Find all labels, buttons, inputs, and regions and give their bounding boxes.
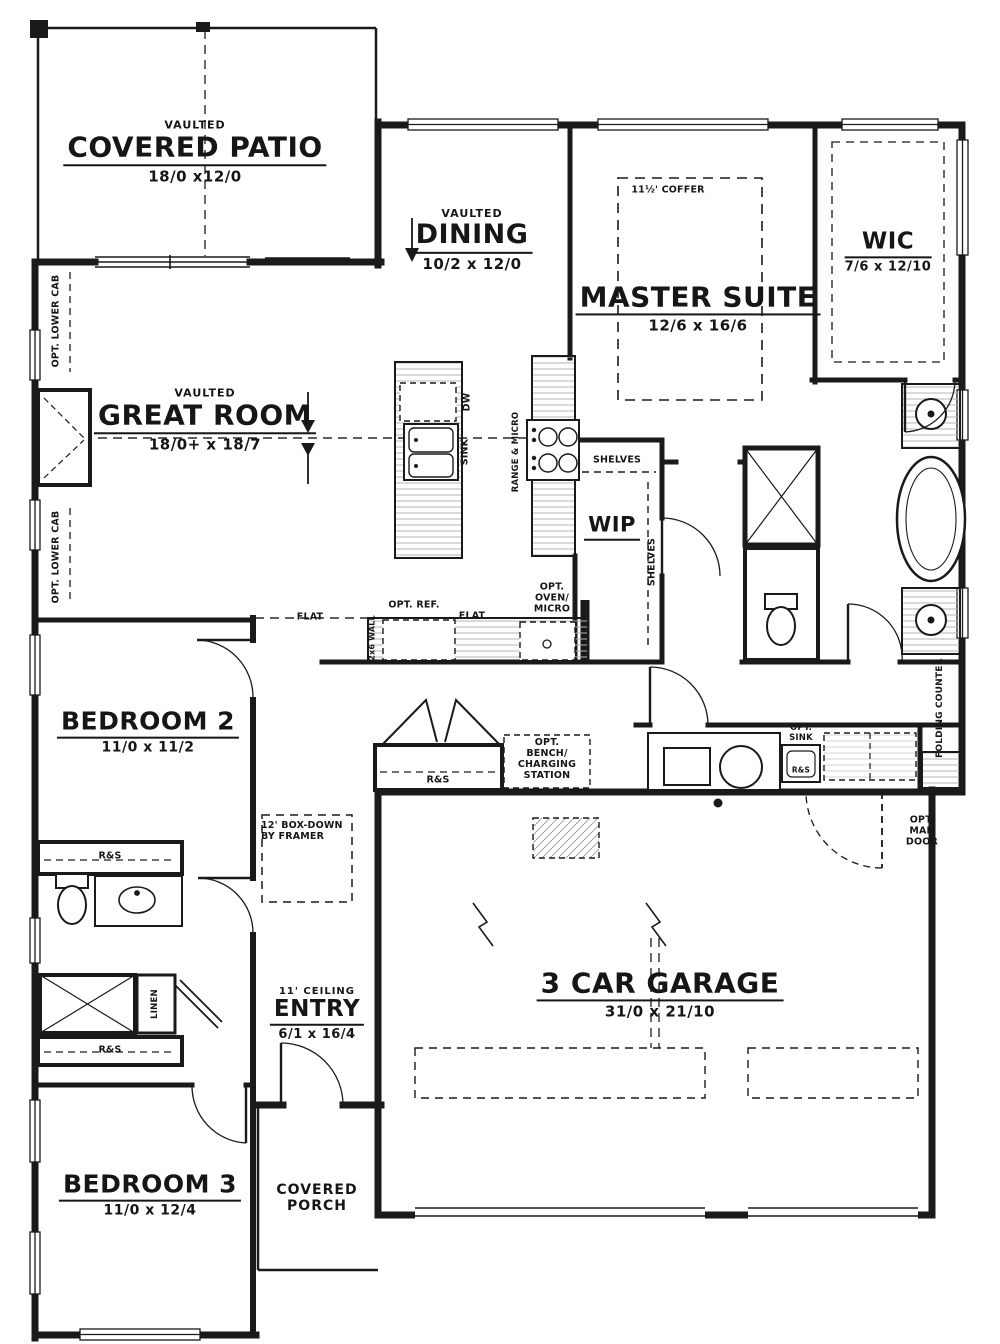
sink-label: SINK — [461, 439, 472, 466]
room-name: 3 CAR GARAGE — [537, 967, 784, 1001]
room-label-bedroom-2: BEDROOM 2 11/0 x 11/2 — [57, 708, 239, 757]
room-dims: 7/6 x 12/10 — [845, 258, 932, 275]
linen-label: LINEN — [151, 989, 161, 1019]
room-name: MASTER SUITE — [576, 281, 821, 315]
toilet — [767, 607, 795, 645]
room-name: ENTRY — [270, 997, 364, 1026]
room-name: WIC — [845, 229, 932, 258]
range-and-micro — [527, 356, 579, 556]
rod-shelf-label: R&S — [98, 1046, 121, 1057]
master-toilet-room — [745, 548, 818, 660]
box-down-label: 12' BOX-DOWN BY FRAMER — [261, 821, 355, 843]
attic-access — [533, 818, 599, 858]
opt-bench-label: OPT. BENCH/ CHARGING STATION — [514, 738, 580, 782]
floor-plan-drawing — [0, 0, 1000, 1344]
rod-shelf-label: R&S — [426, 776, 449, 787]
range-micro-label: RANGE & MICRO — [512, 412, 522, 493]
room-label-wic: WIC 7/6 x 12/10 — [845, 229, 932, 274]
opt-lower-cab-label: OPT. LOWER CAB — [52, 275, 63, 368]
coffer-note: 11½' COFFER — [631, 186, 704, 197]
wall-2x6-label: 2x6 WALL — [367, 615, 376, 661]
garage-bay — [415, 1048, 705, 1098]
rod-shelf-label: R&S — [792, 767, 810, 776]
opt-lower-cab-label: OPT. LOWER CAB — [52, 511, 63, 604]
ceiling-break — [473, 903, 666, 946]
room-name: BEDROOM 2 — [57, 708, 239, 739]
opt-refrigerator — [383, 620, 455, 660]
room-label-covered-patio: VAULTED COVERED PATIO 18/0 x12/0 — [63, 119, 326, 184]
room-name: DINING — [412, 220, 533, 253]
opt-sink-label: OPT. SINK — [781, 724, 821, 744]
opt-ref-label: OPT. REF. — [388, 601, 439, 612]
room-name: WIP — [584, 514, 640, 541]
kitchen-counter-row — [368, 618, 588, 662]
toilet — [58, 886, 86, 924]
flat-ceiling-label: FLAT — [459, 612, 485, 623]
opt-oven-micro — [520, 622, 575, 660]
room-label-covered-porch: COVERED PORCH — [267, 1182, 367, 1214]
rod-shelf-label: R&S — [98, 852, 121, 863]
master-shower — [745, 448, 818, 545]
room-dims: 31/0 x 21/10 — [537, 1002, 784, 1021]
opt-oven-micro-label: OPT. OVEN/ MICRO — [528, 583, 576, 616]
dishwasher — [400, 383, 456, 421]
garage-doors — [415, 1206, 918, 1219]
room-label-wip: WIP — [584, 514, 640, 541]
room-dims: 11/0 x 11/2 — [57, 739, 239, 757]
room-dims: 12/6 x 16/6 — [576, 316, 821, 335]
garage-features — [415, 818, 918, 1098]
dryer — [720, 746, 762, 788]
flat-ceiling-label: FLAT — [297, 613, 323, 624]
floor-drain — [714, 799, 722, 807]
room-label-great-room: VAULTED GREAT ROOM 18/0+ x 18/7 — [94, 387, 316, 452]
shelves-label: SHELVES — [593, 456, 641, 467]
room-label-bedroom-3: BEDROOM 3 11/0 x 12/4 — [59, 1171, 241, 1220]
room-name: COVERED PATIO — [63, 132, 326, 166]
garage-bay — [748, 1048, 918, 1098]
floor-plan: VAULTED COVERED PATIO 18/0 x12/0 VAULTED… — [0, 0, 1000, 1344]
opt-man-door-label: OPT. MAN DOOR — [896, 816, 948, 849]
pantry-shelves — [582, 472, 656, 650]
bathtub — [897, 457, 965, 581]
room-label-dining: VAULTED DINING 10/2 x 12/0 — [412, 208, 533, 272]
room-dims: 10/2 x 12/0 — [412, 253, 533, 272]
room-dims: 18/0 x12/0 — [63, 166, 326, 185]
patio-post — [196, 22, 210, 32]
room-name: BEDROOM 3 — [59, 1171, 241, 1202]
room-label-master-suite: MASTER SUITE 12/6 x 16/6 — [576, 281, 821, 334]
fireplace — [38, 390, 90, 485]
shelves-label: SHELVES — [648, 538, 659, 586]
bath-hall-block — [38, 842, 222, 1065]
room-dims: 18/0+ x 18/7 — [94, 434, 316, 453]
room-dims: 6/1 x 16/4 — [270, 1026, 364, 1043]
room-label-entry: 11' CEILING ENTRY 6/1 x 16/4 — [270, 986, 364, 1042]
room-label-garage: 3 CAR GARAGE 31/0 x 21/10 — [537, 967, 784, 1020]
folding-counter-label: FOLDING COUNTER — [935, 652, 945, 764]
patio-post — [30, 20, 48, 38]
washer — [664, 748, 710, 785]
linen-door — [176, 980, 222, 1028]
room-dims: 11/0 x 12/4 — [59, 1202, 241, 1220]
dishwasher-label: DW — [463, 393, 474, 412]
kitchen-island — [395, 362, 462, 558]
room-name: GREAT ROOM — [94, 400, 316, 434]
